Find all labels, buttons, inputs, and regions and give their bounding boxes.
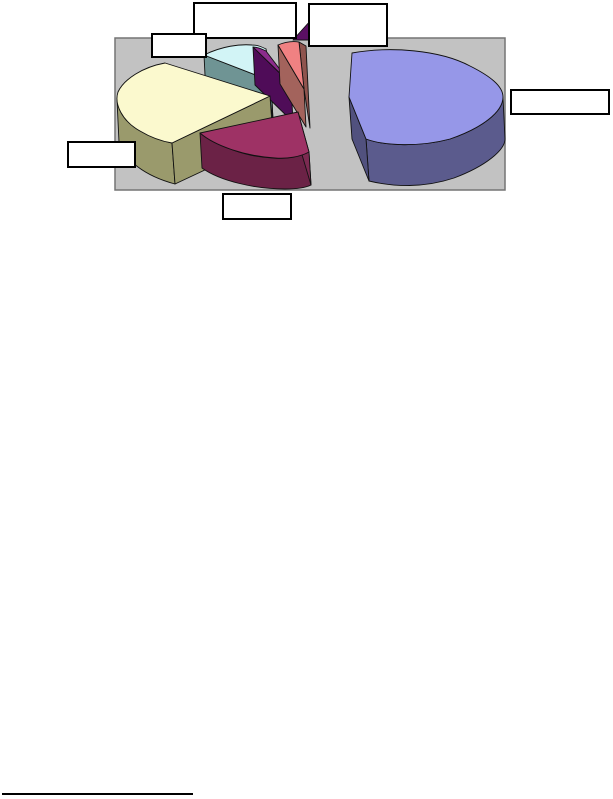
callout-label-left — [69, 143, 134, 145]
footnote-separator-line — [2, 793, 193, 795]
callout-box-right[interactable] — [510, 89, 610, 115]
callout-box-top-center[interactable] — [193, 2, 297, 39]
document-page — [0, 0, 613, 799]
callout-box-bottom[interactable] — [222, 193, 292, 220]
callout-label-upper-left — [153, 35, 205, 37]
callout-box-upper-left[interactable] — [151, 33, 207, 58]
callout-label-top-right — [310, 5, 386, 7]
callout-label-top-center — [195, 4, 295, 6]
callout-label-bottom — [224, 195, 290, 197]
callout-label-right — [512, 91, 608, 93]
callout-box-left[interactable] — [67, 141, 136, 168]
callout-box-top-right[interactable] — [308, 3, 388, 47]
pie-chart-3d[interactable] — [0, 0, 613, 250]
